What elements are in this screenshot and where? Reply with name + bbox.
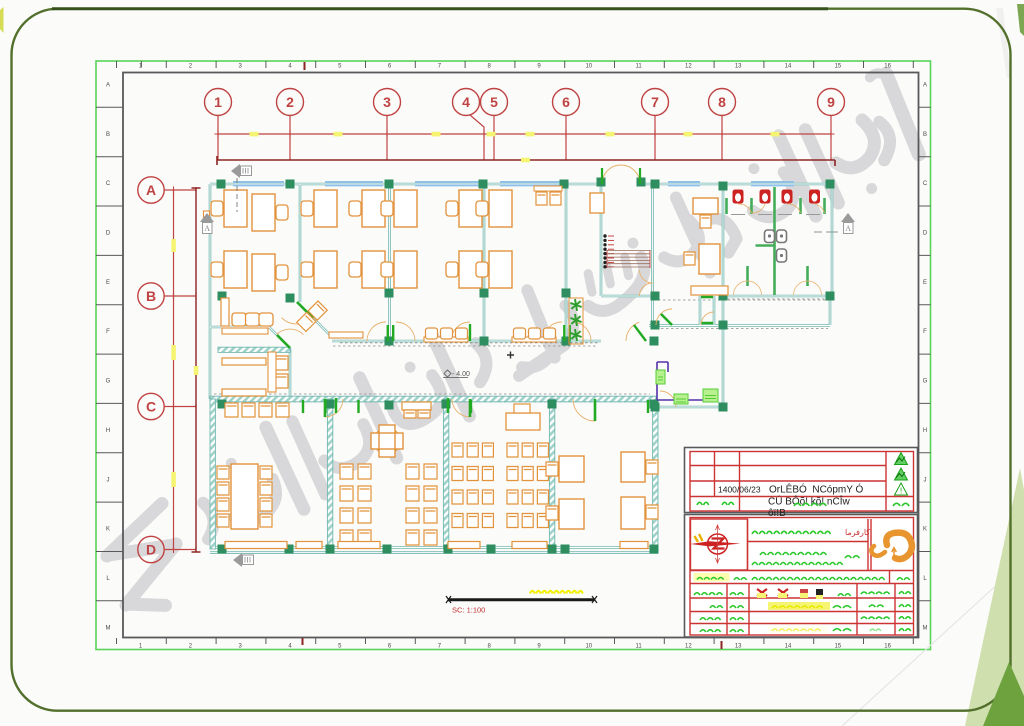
svg-text:- 4.00: - 4.00 (452, 371, 470, 378)
svg-text:J: J (107, 477, 110, 483)
svg-text:D: D (106, 231, 111, 237)
svg-text:C: C (923, 181, 928, 187)
svg-text:A: A (845, 224, 851, 233)
svg-text:11: 11 (635, 644, 642, 650)
svg-text:1: 1 (214, 94, 222, 110)
svg-text:A: A (204, 224, 210, 233)
svg-text:SC: 1:100: SC: 1:100 (452, 606, 485, 615)
svg-text:14: 14 (785, 644, 792, 650)
svg-text:H: H (106, 428, 110, 434)
svg-text:A: A (923, 83, 927, 89)
svg-text:E: E (106, 280, 110, 286)
svg-text:9: 9 (827, 94, 835, 110)
svg-text:G: G (923, 379, 928, 385)
svg-text:5: 5 (490, 94, 498, 110)
svg-text:12: 12 (685, 644, 692, 650)
svg-text:C: C (146, 399, 156, 415)
svg-text:كارفرما: كارفرما (845, 528, 870, 537)
svg-text:B: B (106, 132, 110, 138)
svg-text:13: 13 (735, 644, 742, 650)
svg-text:B: B (923, 132, 927, 138)
svg-text:K: K (106, 527, 110, 533)
svg-text:7: 7 (651, 94, 659, 110)
svg-text:M: M (923, 625, 928, 631)
svg-text:OrLÊBÓ NCópmY Ó: OrLÊBÓ NCópmY Ó (769, 483, 864, 496)
svg-text:E: E (923, 280, 927, 286)
svg-text:8: 8 (718, 94, 726, 110)
svg-text:F: F (106, 329, 110, 335)
svg-text:14: 14 (785, 64, 792, 70)
svg-text:M: M (106, 625, 111, 631)
svg-text:2: 2 (286, 94, 294, 110)
svg-text:3: 3 (383, 94, 391, 110)
svg-text:12: 12 (685, 64, 692, 70)
svg-text:G: G (106, 379, 111, 385)
svg-text:H: H (923, 428, 927, 434)
svg-text:B: B (146, 288, 156, 304)
svg-text:C: C (106, 181, 111, 187)
svg-text:6: 6 (562, 94, 570, 110)
svg-text:13: 13 (735, 64, 742, 70)
svg-text:10: 10 (585, 644, 592, 650)
svg-text:16: 16 (884, 644, 891, 650)
svg-text:!: ! (900, 486, 902, 496)
svg-text:D: D (923, 231, 928, 237)
svg-text:16: 16 (884, 64, 891, 70)
svg-text:15: 15 (834, 644, 841, 650)
svg-text:4: 4 (462, 94, 470, 110)
svg-text:1400/06/23: 1400/06/23 (718, 485, 761, 495)
svg-text:D: D (146, 542, 156, 558)
svg-text:A: A (146, 182, 156, 198)
svg-text:K: K (923, 527, 927, 533)
svg-text:15: 15 (834, 64, 841, 70)
svg-text:J: J (924, 477, 927, 483)
svg-text:A: A (106, 83, 110, 89)
svg-text:F: F (923, 329, 927, 335)
svg-text:10: 10 (585, 64, 592, 70)
svg-text:11: 11 (635, 64, 642, 70)
